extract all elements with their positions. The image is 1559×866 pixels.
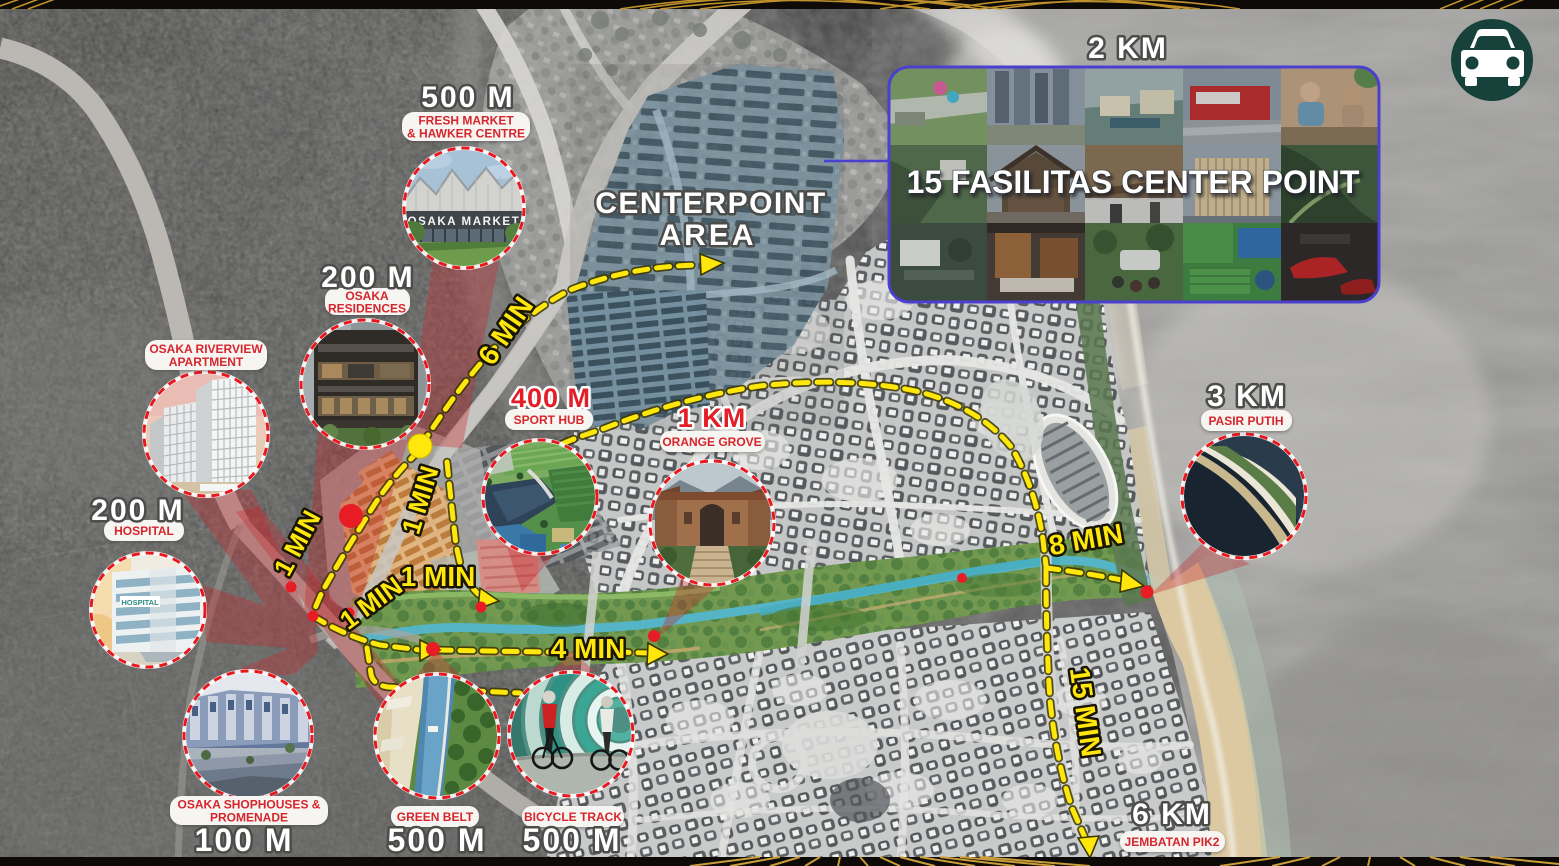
svg-text:1 MIN: 1 MIN: [401, 561, 476, 592]
svg-text:AREA: AREA: [659, 219, 756, 252]
svg-text:4 MIN: 4 MIN: [551, 633, 626, 664]
svg-text:500 M: 500 M: [523, 822, 622, 858]
svg-text:RESIDENCES: RESIDENCES: [328, 302, 406, 316]
svg-text:FRESH MARKET: FRESH MARKET: [418, 114, 514, 128]
svg-text:PASIR PUTIH: PASIR PUTIH: [1208, 414, 1283, 428]
svg-text:15 FASILITAS CENTER POINT: 15 FASILITAS CENTER POINT: [907, 164, 1360, 200]
svg-text:500 M: 500 M: [388, 822, 487, 858]
svg-text:CENTERPOINT: CENTERPOINT: [595, 187, 827, 220]
svg-text:OSAKA SHOPHOUSES &: OSAKA SHOPHOUSES &: [178, 798, 321, 812]
svg-text:3 KM: 3 KM: [1207, 380, 1287, 413]
svg-text:& HAWKER CENTRE: & HAWKER CENTRE: [407, 127, 525, 141]
svg-text:6 KM: 6 KM: [1132, 798, 1212, 831]
svg-text:JEMBATAN PIK2: JEMBATAN PIK2: [1125, 835, 1220, 849]
svg-text:400 M: 400 M: [511, 383, 591, 413]
svg-text:200 M: 200 M: [321, 261, 414, 294]
svg-text:SPORT HUB: SPORT HUB: [514, 413, 585, 427]
svg-text:1 KM: 1 KM: [678, 403, 747, 433]
svg-text:APARTMENT: APARTMENT: [169, 355, 244, 369]
svg-text:OSAKA RIVERVIEW: OSAKA RIVERVIEW: [149, 342, 263, 356]
svg-text:100 M: 100 M: [195, 822, 294, 858]
svg-text:200 M: 200 M: [91, 494, 184, 527]
svg-text:2 KM: 2 KM: [1088, 32, 1168, 65]
svg-text:500 M: 500 M: [421, 81, 514, 114]
svg-text:HOSPITAL: HOSPITAL: [121, 598, 159, 607]
svg-text:OSAKA MARKET: OSAKA MARKET: [408, 216, 521, 228]
svg-text:ORANGE GROVE: ORANGE GROVE: [662, 435, 761, 449]
